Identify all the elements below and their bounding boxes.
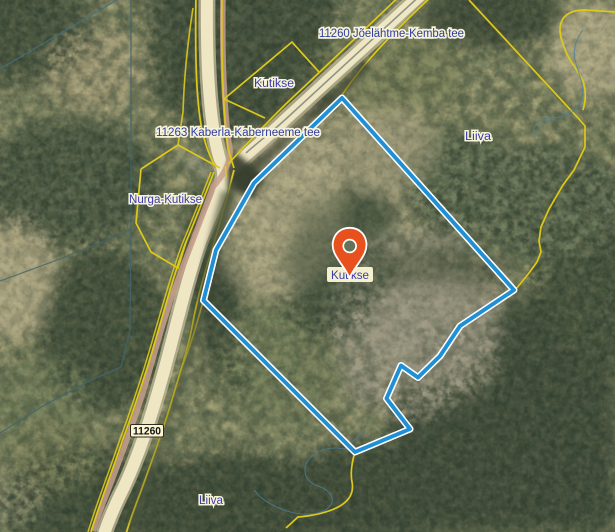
svg-text:11260: 11260 [133,426,161,438]
svg-text:11260 Jõelähtme-Kemba tee: 11260 Jõelähtme-Kemba tee [319,28,464,40]
svg-text:11263 Kaberla-Kaberneeme tee: 11263 Kaberla-Kaberneeme tee [156,127,320,139]
svg-text:Liiva: Liiva [199,495,224,507]
svg-text:Kutikse: Kutikse [254,78,294,90]
svg-text:Liiva: Liiva [465,131,492,143]
svg-text:Nurga-Kutikse: Nurga-Kutikse [129,194,202,206]
